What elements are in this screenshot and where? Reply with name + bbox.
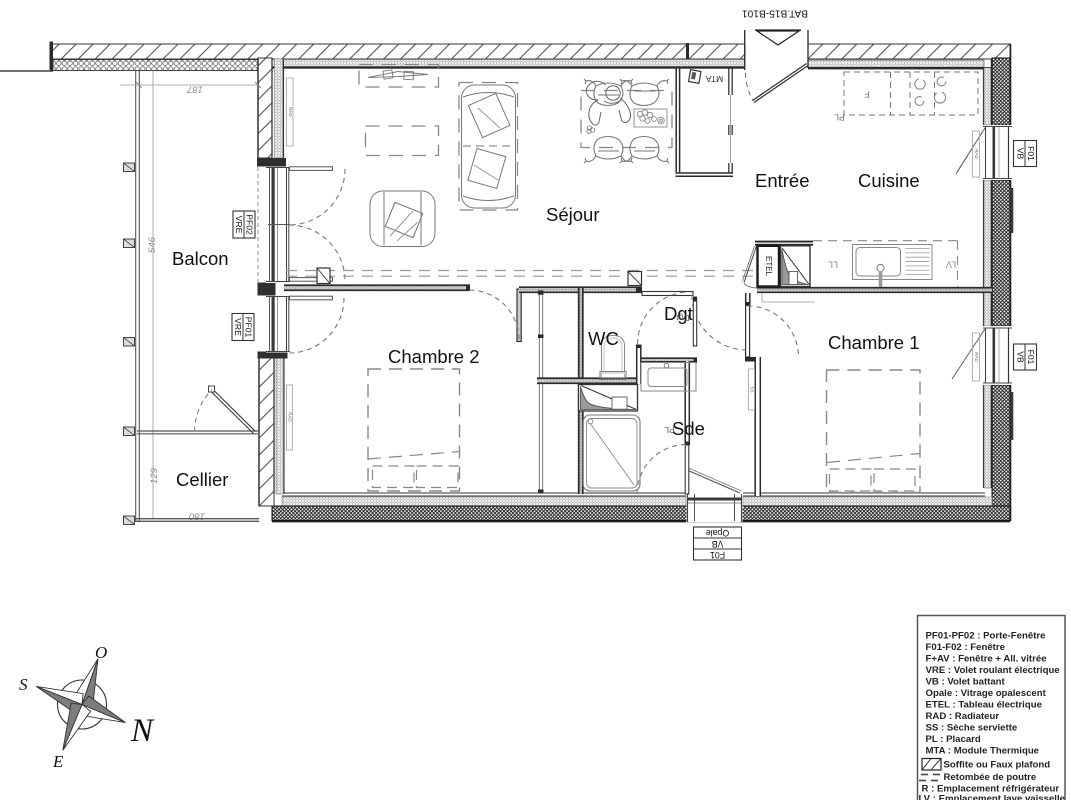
svg-text:Opale : Vitrage opalescent: Opale : Vitrage opalescent xyxy=(926,688,1047,699)
svg-text:WC: WC xyxy=(588,328,619,349)
svg-text:SS : Sèche serviette: SS : Sèche serviette xyxy=(926,723,1018,734)
svg-text:Cuisine: Cuisine xyxy=(858,170,920,191)
svg-text:MTA: MTA xyxy=(706,74,724,84)
svg-text:ETEL : Tableau électrique: ETEL : Tableau électrique xyxy=(926,700,1042,711)
svg-text:S: S xyxy=(19,675,28,694)
svg-text:PF01: PF01 xyxy=(244,317,254,338)
svg-text:Chambre 2: Chambre 2 xyxy=(388,346,480,367)
svg-text:Séjour: Séjour xyxy=(546,204,599,225)
svg-text:PF01-PF02 : Porte-Fenêtre: PF01-PF02 : Porte-Fenêtre xyxy=(926,631,1046,642)
svg-text:RAD: RAD xyxy=(974,149,979,159)
svg-text:E: E xyxy=(52,752,64,771)
svg-text:Entrée: Entrée xyxy=(755,170,810,191)
svg-text:F01-F02 : Fenêtre: F01-F02 : Fenêtre xyxy=(926,642,1005,653)
svg-text:PL : Placard: PL : Placard xyxy=(926,734,981,745)
svg-text:187: 187 xyxy=(186,83,203,94)
svg-text:RAD: RAD xyxy=(288,107,293,117)
svg-text:LV: LV xyxy=(946,260,956,270)
svg-text:O: O xyxy=(95,643,107,662)
svg-text:F01: F01 xyxy=(1026,146,1036,161)
svg-text:VB : Volet battant: VB : Volet battant xyxy=(926,677,1006,688)
svg-text:SS: SS xyxy=(749,386,754,392)
svg-text:129: 129 xyxy=(149,467,160,484)
svg-text:LL: LL xyxy=(828,260,838,270)
svg-text:180: 180 xyxy=(188,510,205,521)
svg-text:F01: F01 xyxy=(1026,350,1036,365)
svg-text:RAD: RAD xyxy=(974,352,979,362)
svg-text:F: F xyxy=(864,89,869,99)
svg-text:F01: F01 xyxy=(710,550,725,560)
svg-text:VRE: VRE xyxy=(234,216,244,234)
svg-text:VRE: VRE xyxy=(233,318,243,336)
svg-text:Cellier: Cellier xyxy=(176,469,228,490)
svg-text:ETEL: ETEL xyxy=(764,256,773,277)
svg-text:546: 546 xyxy=(147,236,158,253)
svg-text:RAD : Radiateur: RAD : Radiateur xyxy=(926,711,1000,722)
svg-text:N: N xyxy=(130,713,155,749)
svg-text:VB: VB xyxy=(1016,148,1026,160)
svg-text:VB: VB xyxy=(1016,351,1026,363)
svg-text:Balcon: Balcon xyxy=(172,248,229,269)
svg-text:BAT.B15-B101: BAT.B15-B101 xyxy=(742,7,808,18)
svg-text:PL: PL xyxy=(834,112,845,122)
svg-text:Retombée de poutre: Retombée de poutre xyxy=(944,772,1037,783)
svg-text:Chambre 1: Chambre 1 xyxy=(828,332,920,353)
svg-text:VB: VB xyxy=(712,539,724,549)
svg-text:Opale: Opale xyxy=(706,528,730,538)
svg-text:F+AV : Fenêtre + All. vitrée: F+AV : Fenêtre + All. vitrée xyxy=(926,654,1047,665)
svg-text:VRE : Volet roulant électrique: VRE : Volet roulant électrique xyxy=(926,665,1060,676)
svg-text:PF02: PF02 xyxy=(245,214,255,235)
svg-text:Sde: Sde xyxy=(672,418,705,439)
svg-text:Soffite ou Faux plafond: Soffite ou Faux plafond xyxy=(944,760,1051,771)
svg-text:Dgt: Dgt xyxy=(676,313,690,323)
svg-text:MTA : Module Thermique: MTA : Module Thermique xyxy=(926,746,1040,757)
svg-text:RAD: RAD xyxy=(287,412,292,422)
svg-text:LV : Emplacement lave vaissell: LV : Emplacement lave vaisselle xyxy=(919,794,1065,800)
